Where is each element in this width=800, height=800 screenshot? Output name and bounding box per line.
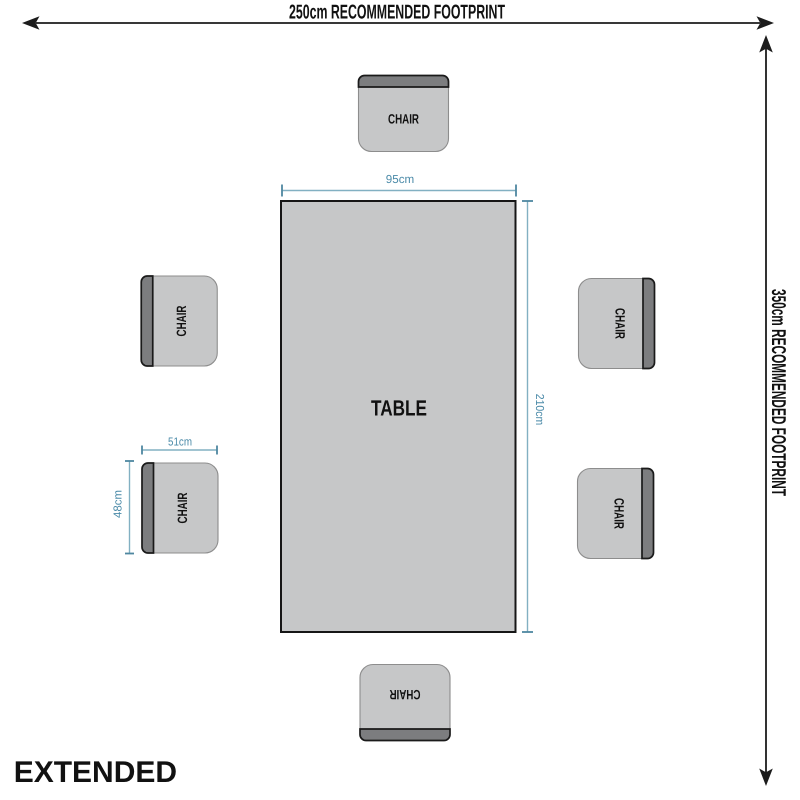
svg-text:95cm: 95cm	[386, 173, 415, 186]
svg-text:CHAIR: CHAIR	[612, 498, 627, 529]
svg-text:TABLE: TABLE	[371, 396, 427, 421]
svg-text:CHAIR: CHAIR	[613, 308, 628, 339]
svg-text:CHAIR: CHAIR	[174, 305, 189, 336]
svg-text:CHAIR: CHAIR	[388, 112, 419, 127]
svg-text:EXTENDED: EXTENDED	[14, 756, 177, 789]
svg-text:48cm: 48cm	[111, 490, 124, 518]
svg-text:CHAIR: CHAIR	[389, 687, 420, 702]
svg-text:51cm: 51cm	[168, 436, 192, 449]
svg-text:210cm: 210cm	[533, 394, 546, 426]
svg-text:CHAIR: CHAIR	[175, 492, 190, 523]
svg-text:250cm RECOMMENDED FOOTPRINT: 250cm RECOMMENDED FOOTPRINT	[289, 1, 505, 23]
svg-text:350cm RECOMMENDED FOOTPRINT: 350cm RECOMMENDED FOOTPRINT	[767, 289, 789, 496]
